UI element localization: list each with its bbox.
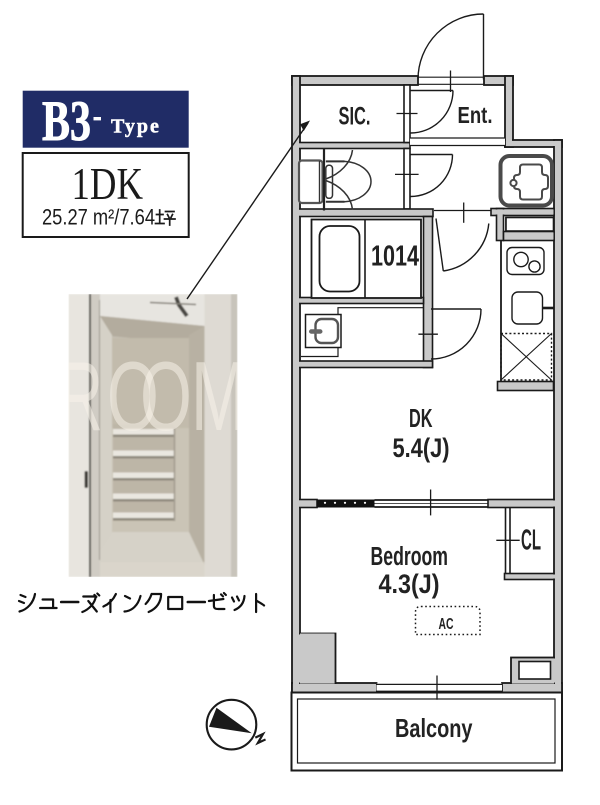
svg-text:AC: AC <box>439 616 454 633</box>
svg-text:CL: CL <box>521 525 541 557</box>
svg-text:5.4(J): 5.4(J) <box>393 433 450 463</box>
svg-text:B3: B3 <box>42 90 91 153</box>
svg-text:25.27 m²/7.64: 25.27 m²/7.64 <box>42 205 155 230</box>
svg-text:Bedroom: Bedroom <box>371 543 449 571</box>
svg-text:Type: Type <box>111 116 161 138</box>
svg-text:Ent.: Ent. <box>458 102 493 128</box>
svg-text:O: O <box>140 341 192 451</box>
svg-text:DK: DK <box>409 405 433 433</box>
svg-text:Balcony: Balcony <box>395 713 473 743</box>
svg-text:SIC.: SIC. <box>339 103 371 131</box>
svg-text:4.3(J): 4.3(J) <box>379 569 440 599</box>
svg-text:1DK: 1DK <box>72 159 144 209</box>
svg-text:1014: 1014 <box>371 241 419 273</box>
